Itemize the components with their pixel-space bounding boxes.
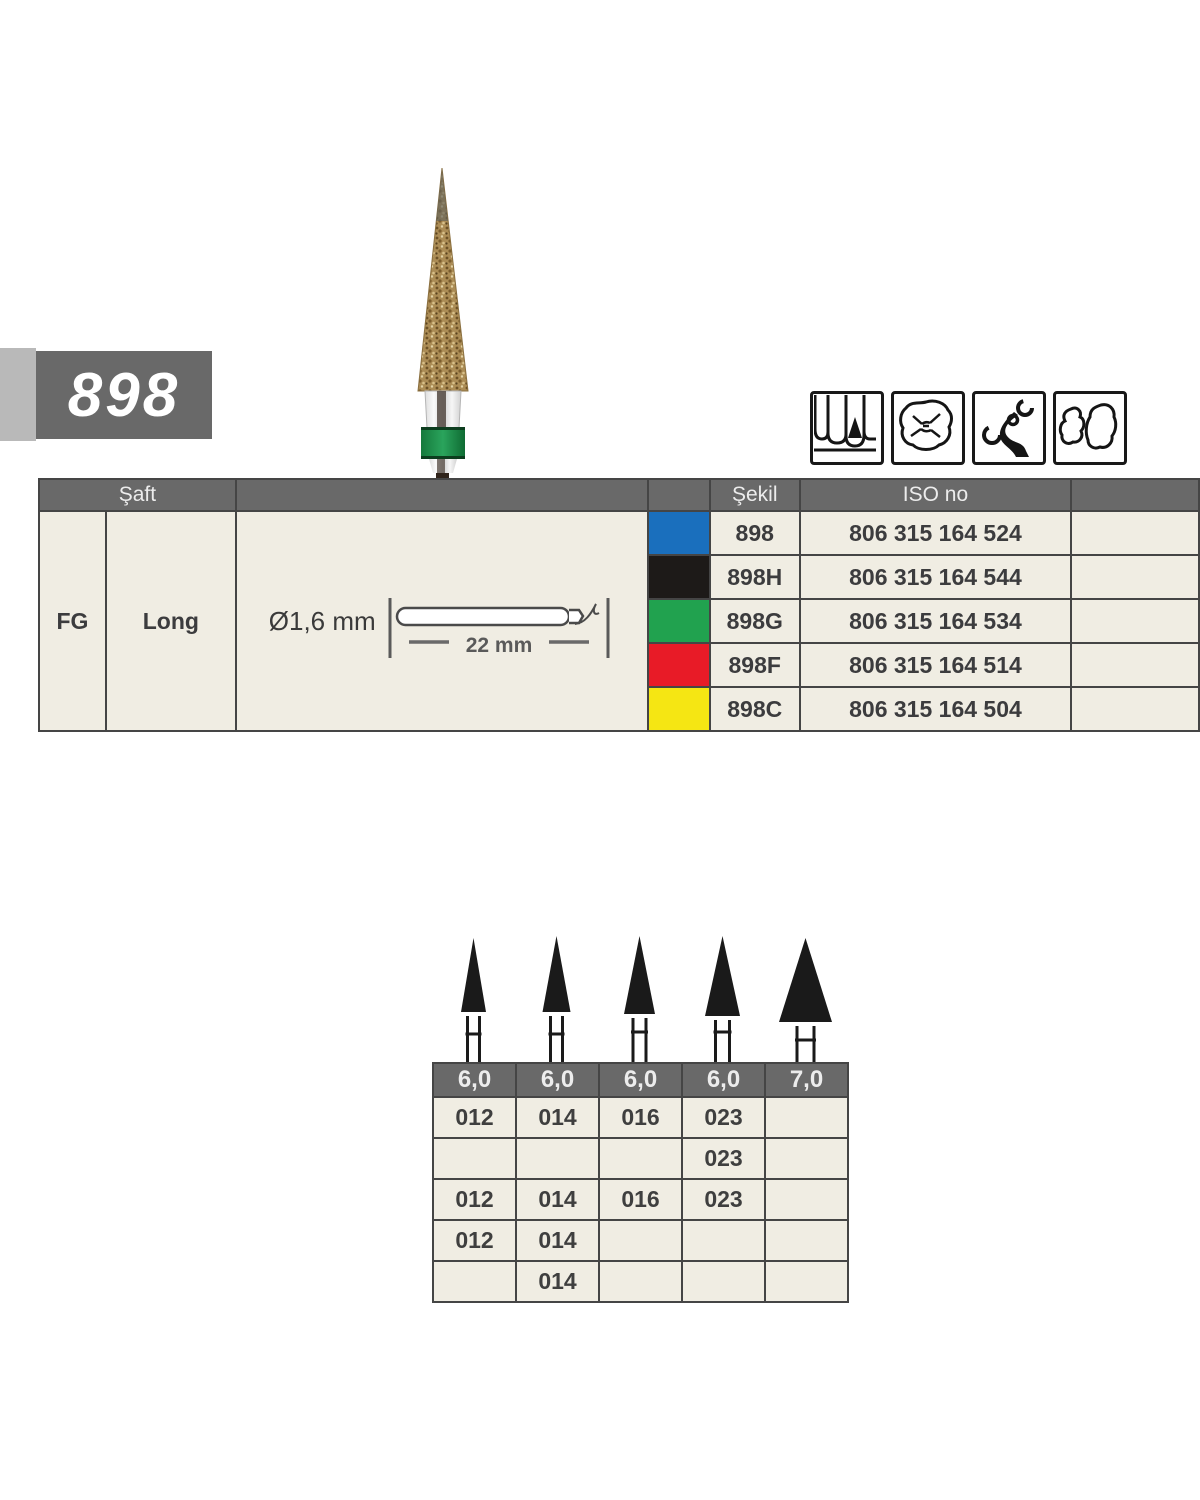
size-cell: 014 [516, 1261, 599, 1302]
color-swatch [648, 599, 710, 643]
size-cell [599, 1138, 682, 1179]
shank-core [437, 391, 446, 428]
application-icons [810, 391, 1127, 465]
shaft-diagram-cell: Ø1,6 mm 22 mm [236, 511, 648, 731]
size-header-row: 6,0 6,0 6,0 6,0 7,0 [433, 1063, 848, 1097]
empty-cell [1071, 599, 1199, 643]
size-row: 023 [433, 1138, 848, 1179]
color-swatch [648, 643, 710, 687]
size-cell: 023 [682, 1138, 765, 1179]
clasp-adjustment-icon [972, 391, 1046, 465]
occlusal-surface-icon [891, 391, 965, 465]
label-side-strip [0, 348, 36, 441]
shape-code-cell: 898F [710, 643, 800, 687]
size-cell [516, 1138, 599, 1179]
shape-code-cell: 898G [710, 599, 800, 643]
size-row: 012 014 016 023 [433, 1097, 848, 1138]
color-swatch [648, 511, 710, 555]
size-cell: 014 [516, 1220, 599, 1261]
spec-header-row: Şaft Şekil ISO no [39, 479, 1199, 511]
cavity-shapes-icon [1053, 391, 1127, 465]
size-cell: 016 [599, 1097, 682, 1138]
size-cell [765, 1220, 848, 1261]
spec-table: Şaft Şekil ISO no FG Long Ø1,6 mm [38, 478, 1200, 732]
size-cell: 012 [433, 1179, 516, 1220]
size-column-header: 6,0 [682, 1063, 765, 1097]
bur-silhouette [705, 936, 740, 1062]
size-cell: 012 [433, 1097, 516, 1138]
size-cell: 023 [682, 1179, 765, 1220]
bur-silhouette [624, 936, 655, 1062]
shank-diagram: 22 mm [387, 596, 627, 671]
iso-header: ISO no [800, 479, 1072, 511]
empty-cell [1071, 643, 1199, 687]
product-number-label: 898 [36, 351, 212, 439]
size-cell [682, 1220, 765, 1261]
green-grit-band [421, 427, 465, 459]
empty-cell [1071, 511, 1199, 555]
size-column-header: 7,0 [765, 1063, 848, 1097]
size-cell [599, 1220, 682, 1261]
empty-cell [1071, 687, 1199, 731]
header-spacer-right [1071, 479, 1199, 511]
shank-length-label: 22 mm [465, 634, 532, 657]
size-cell [433, 1261, 516, 1302]
size-column-header: 6,0 [516, 1063, 599, 1097]
bur-silhouettes [432, 928, 847, 1062]
bur-silhouette [461, 938, 486, 1062]
band-edge-bottom [421, 456, 465, 459]
product-number: 898 [68, 360, 180, 431]
band-edge-top [421, 427, 465, 430]
shaft-type-cell: FG [39, 511, 106, 731]
iso-number-cell: 806 315 164 504 [800, 687, 1072, 731]
bur-photo [385, 165, 505, 478]
color-swatch [648, 555, 710, 599]
saft-header: Şaft [39, 479, 236, 511]
bur-silhouette [779, 938, 832, 1062]
size-cell: 014 [516, 1097, 599, 1138]
size-column-header: 6,0 [599, 1063, 682, 1097]
size-cell: 014 [516, 1179, 599, 1220]
shaft-length-cell: Long [106, 511, 236, 731]
size-cell [765, 1097, 848, 1138]
shape-code-cell: 898C [710, 687, 800, 731]
iso-number-cell: 806 315 164 524 [800, 511, 1072, 555]
shape-code-cell: 898H [710, 555, 800, 599]
size-row: 012 014 [433, 1220, 848, 1261]
size-row: 014 [433, 1261, 848, 1302]
diameter-label: Ø1,6 mm [269, 606, 376, 637]
sekil-header: Şekil [710, 479, 800, 511]
header-spacer [236, 479, 648, 511]
size-row: 012 014 016 023 [433, 1179, 848, 1220]
size-table: 6,0 6,0 6,0 6,0 7,0 012 014 016 023 023 … [432, 1062, 849, 1303]
size-cell [765, 1179, 848, 1220]
size-column-header: 6,0 [433, 1063, 516, 1097]
size-cell [682, 1261, 765, 1302]
color-swatch [648, 687, 710, 731]
spec-row: FG Long Ø1,6 mm 22 mm 898 806 315 164 52… [39, 511, 1199, 555]
size-cell [765, 1138, 848, 1179]
iso-number-cell: 806 315 164 534 [800, 599, 1072, 643]
shank-core-lower [437, 459, 445, 473]
anterior-teeth-icon [810, 391, 884, 465]
iso-number-cell: 806 315 164 544 [800, 555, 1072, 599]
color-header [648, 479, 710, 511]
iso-number-cell: 806 315 164 514 [800, 643, 1072, 687]
size-cell [765, 1261, 848, 1302]
bur-silhouette [543, 936, 571, 1062]
size-cell: 016 [599, 1179, 682, 1220]
catalog-page: 898 [0, 0, 1200, 1500]
size-cell: 023 [682, 1097, 765, 1138]
empty-cell [1071, 555, 1199, 599]
size-cell [599, 1261, 682, 1302]
size-cell: 012 [433, 1220, 516, 1261]
shape-code-cell: 898 [710, 511, 800, 555]
size-cell [433, 1138, 516, 1179]
bur-tip [436, 168, 448, 221]
